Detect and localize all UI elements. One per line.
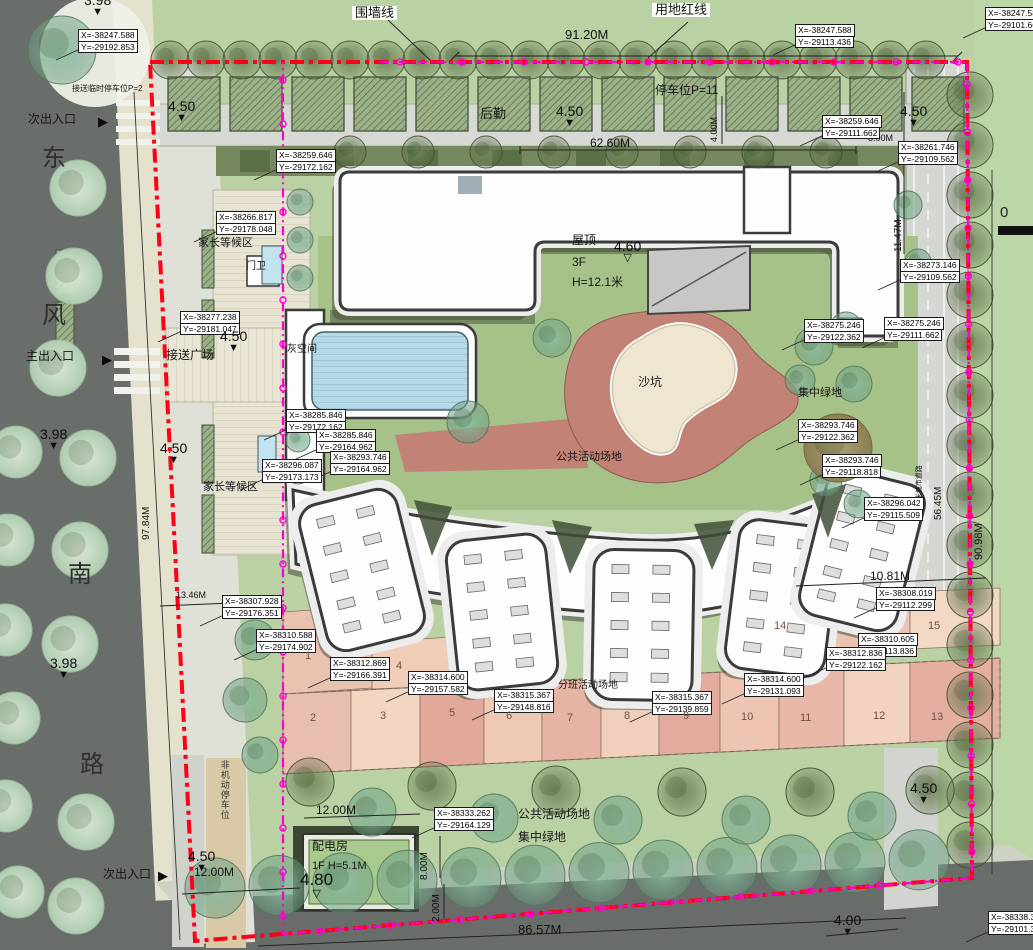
activity-cell-number: 12	[873, 710, 885, 722]
area-label: 屋顶	[572, 234, 596, 247]
area-label: 家长等候区	[198, 238, 253, 250]
coordinate-label: X=-38273.146Y=-29109.562	[900, 260, 960, 283]
dimension-label: 10.81M	[870, 570, 910, 583]
spot-elevation: 3.98▼	[50, 655, 77, 680]
dimension-label: 2.00M	[432, 894, 443, 922]
dimension-label: 11.47M	[894, 219, 905, 252]
activity-cell-number: 8	[624, 710, 630, 722]
spot-elevation: 4.00▼	[834, 912, 861, 937]
area-label: 灰空间	[287, 345, 317, 356]
scale-bar-zero: 0	[1000, 204, 1008, 221]
spot-elevation: 4.80▽	[300, 870, 333, 899]
coordinate-label: X=-38314.600Y=-29157.582	[408, 672, 468, 695]
dimension-label: 56.45M	[934, 487, 945, 520]
annotation-overlay: 围墙线用地红线91.20M停车位P=11接送临时停车位P=2后勤62.60M4.…	[0, 0, 1033, 950]
coordinate-label: X=-38308.019Y=-29112.299	[876, 588, 936, 611]
coordinate-label: X=-38259.646Y=-29172.162	[276, 150, 336, 173]
dimension-label: 91.20M	[565, 28, 608, 42]
coordinate-label: X=-38333.262Y=-29164.129	[434, 808, 494, 831]
area-label: 分班活动场地	[558, 681, 618, 692]
area-label: 配电房	[312, 840, 348, 853]
coordinate-label: X=-38285.846Y=-29164.962	[316, 430, 376, 453]
legend-label: 用地红线	[652, 3, 710, 17]
spot-elevation: 4.50▼	[900, 103, 927, 128]
dimension-label: 4.00M	[710, 117, 720, 142]
site-plan: 围墙线用地红线91.20M停车位P=11接送临时停车位P=2后勤62.60M4.…	[0, 0, 1033, 950]
coordinate-label: X=-38293.746Y=-29122.362	[798, 420, 858, 443]
coordinate-label: X=-38296.042Y=-29115.509	[864, 498, 924, 521]
coordinate-label: X=-38315.367Y=-29139.859	[652, 692, 712, 715]
spot-elevation: 4.50▼	[220, 328, 247, 353]
dimension-label: 97.84M	[142, 507, 153, 540]
activity-cell-number: 10	[741, 711, 753, 723]
coordinate-label: X=-38275.246Y=-29122.362	[804, 320, 864, 343]
area-label: 公共活动场地	[518, 808, 590, 821]
dimension-label: 12.00M	[316, 804, 356, 817]
area-label: 次出入口	[103, 868, 151, 881]
spot-elevation: 3.98▼	[84, 0, 111, 17]
area-label: 非机动停车位	[219, 760, 229, 820]
coordinate-label: X=-38261.746Y=-29109.562	[898, 142, 958, 165]
area-label: 集中绿地	[798, 388, 842, 400]
dimension-label: 90.98M	[974, 523, 986, 560]
coordinate-label: X=-38296.087Y=-29173.173	[262, 460, 322, 483]
road-name-char: 南	[68, 562, 92, 588]
entrance-arrow-icon: ▶	[98, 114, 108, 130]
entrance-arrow-icon: ▶	[102, 352, 112, 368]
activity-cell-number: 5	[449, 707, 455, 719]
spot-elevation: 3.98▼	[40, 426, 67, 451]
coordinate-label: X=-38247.588Y=-29113.436	[795, 25, 855, 48]
road-name-char: 东	[42, 146, 66, 172]
activity-cell-number: 2	[310, 712, 316, 724]
road-name-char: 风	[42, 303, 66, 329]
dimension-label: 8.00M	[420, 852, 431, 880]
spot-elevation: 4.50▼	[168, 98, 195, 123]
legend-label: 围墙线	[352, 6, 397, 20]
activity-cell-number: 7	[567, 712, 573, 724]
activity-cell-number: 14	[774, 620, 786, 632]
area-label: 后勤	[480, 107, 506, 121]
area-label: H=12.1米	[572, 276, 623, 289]
coordinate-label: X=-38266.817Y=-29178.048	[216, 212, 276, 235]
spot-elevation: 4.50▼	[160, 440, 187, 465]
spot-elevation: 4.60▽	[614, 238, 641, 263]
scale-bar	[998, 226, 1033, 235]
area-label: 公共活动场地	[556, 452, 622, 464]
area-label: 次出入口	[28, 113, 76, 126]
coordinate-label: X=-38338.358Y=-29101.338	[988, 912, 1033, 935]
coordinate-label: X=-38312.869Y=-29166.391	[330, 658, 390, 681]
area-label: 家长等候区	[203, 482, 258, 494]
area-label: 主出入口	[26, 350, 74, 363]
spot-elevation: 4.50▼	[188, 848, 215, 873]
area-label: 接送广场	[166, 349, 214, 362]
coordinate-label: X=-38315.367Y=-29148.816	[494, 690, 554, 713]
area-label: 3F	[572, 256, 586, 269]
coordinate-label: X=-38312.836Y=-29122.162	[826, 648, 886, 671]
coordinate-label: X=-38293.746Y=-29118.818	[822, 455, 882, 478]
activity-cell-number: 11	[800, 712, 811, 724]
spot-elevation: 4.50▼	[556, 103, 583, 128]
area-label: 停车位P=11	[655, 84, 718, 97]
activity-cell-number: 3	[380, 710, 386, 722]
activity-cell-number: 15	[928, 620, 940, 632]
activity-cell-number: 4	[396, 660, 402, 672]
activity-cell-number: 1	[305, 650, 311, 662]
area-label: 接送临时停车位P=2	[72, 85, 142, 94]
area-label: 门卫	[246, 262, 266, 273]
coordinate-label: X=-38293.746Y=-29164.962	[330, 452, 390, 475]
activity-cell-number: 6	[506, 710, 512, 722]
activity-cell-number: 13	[931, 711, 943, 723]
coordinate-label: X=-38307.928Y=-29176.351	[222, 596, 282, 619]
coordinate-label: X=-38247.588Y=-29192.853	[78, 30, 138, 53]
coordinate-label: X=-38314.600Y=-29131.093	[744, 674, 804, 697]
dimension-label: 13.46M	[176, 591, 206, 601]
area-label: 沙坑	[638, 376, 662, 389]
coordinate-label: X=-38247.588Y=-29101.662	[985, 8, 1033, 31]
activity-cell-number: 9	[683, 710, 689, 722]
dimension-label: 86.57M	[518, 923, 561, 937]
coordinate-label: X=-38275.246Y=-29111.662	[884, 318, 944, 341]
area-label: 集中绿地	[518, 831, 566, 844]
spot-elevation: 4.50▼	[910, 780, 937, 805]
coordinate-label: X=-38259.646Y=-29111.662	[822, 116, 882, 139]
dimension-label: 62.60M	[590, 137, 630, 150]
road-name-char: 路	[80, 752, 104, 778]
entrance-arrow-icon: ▶	[158, 868, 168, 884]
